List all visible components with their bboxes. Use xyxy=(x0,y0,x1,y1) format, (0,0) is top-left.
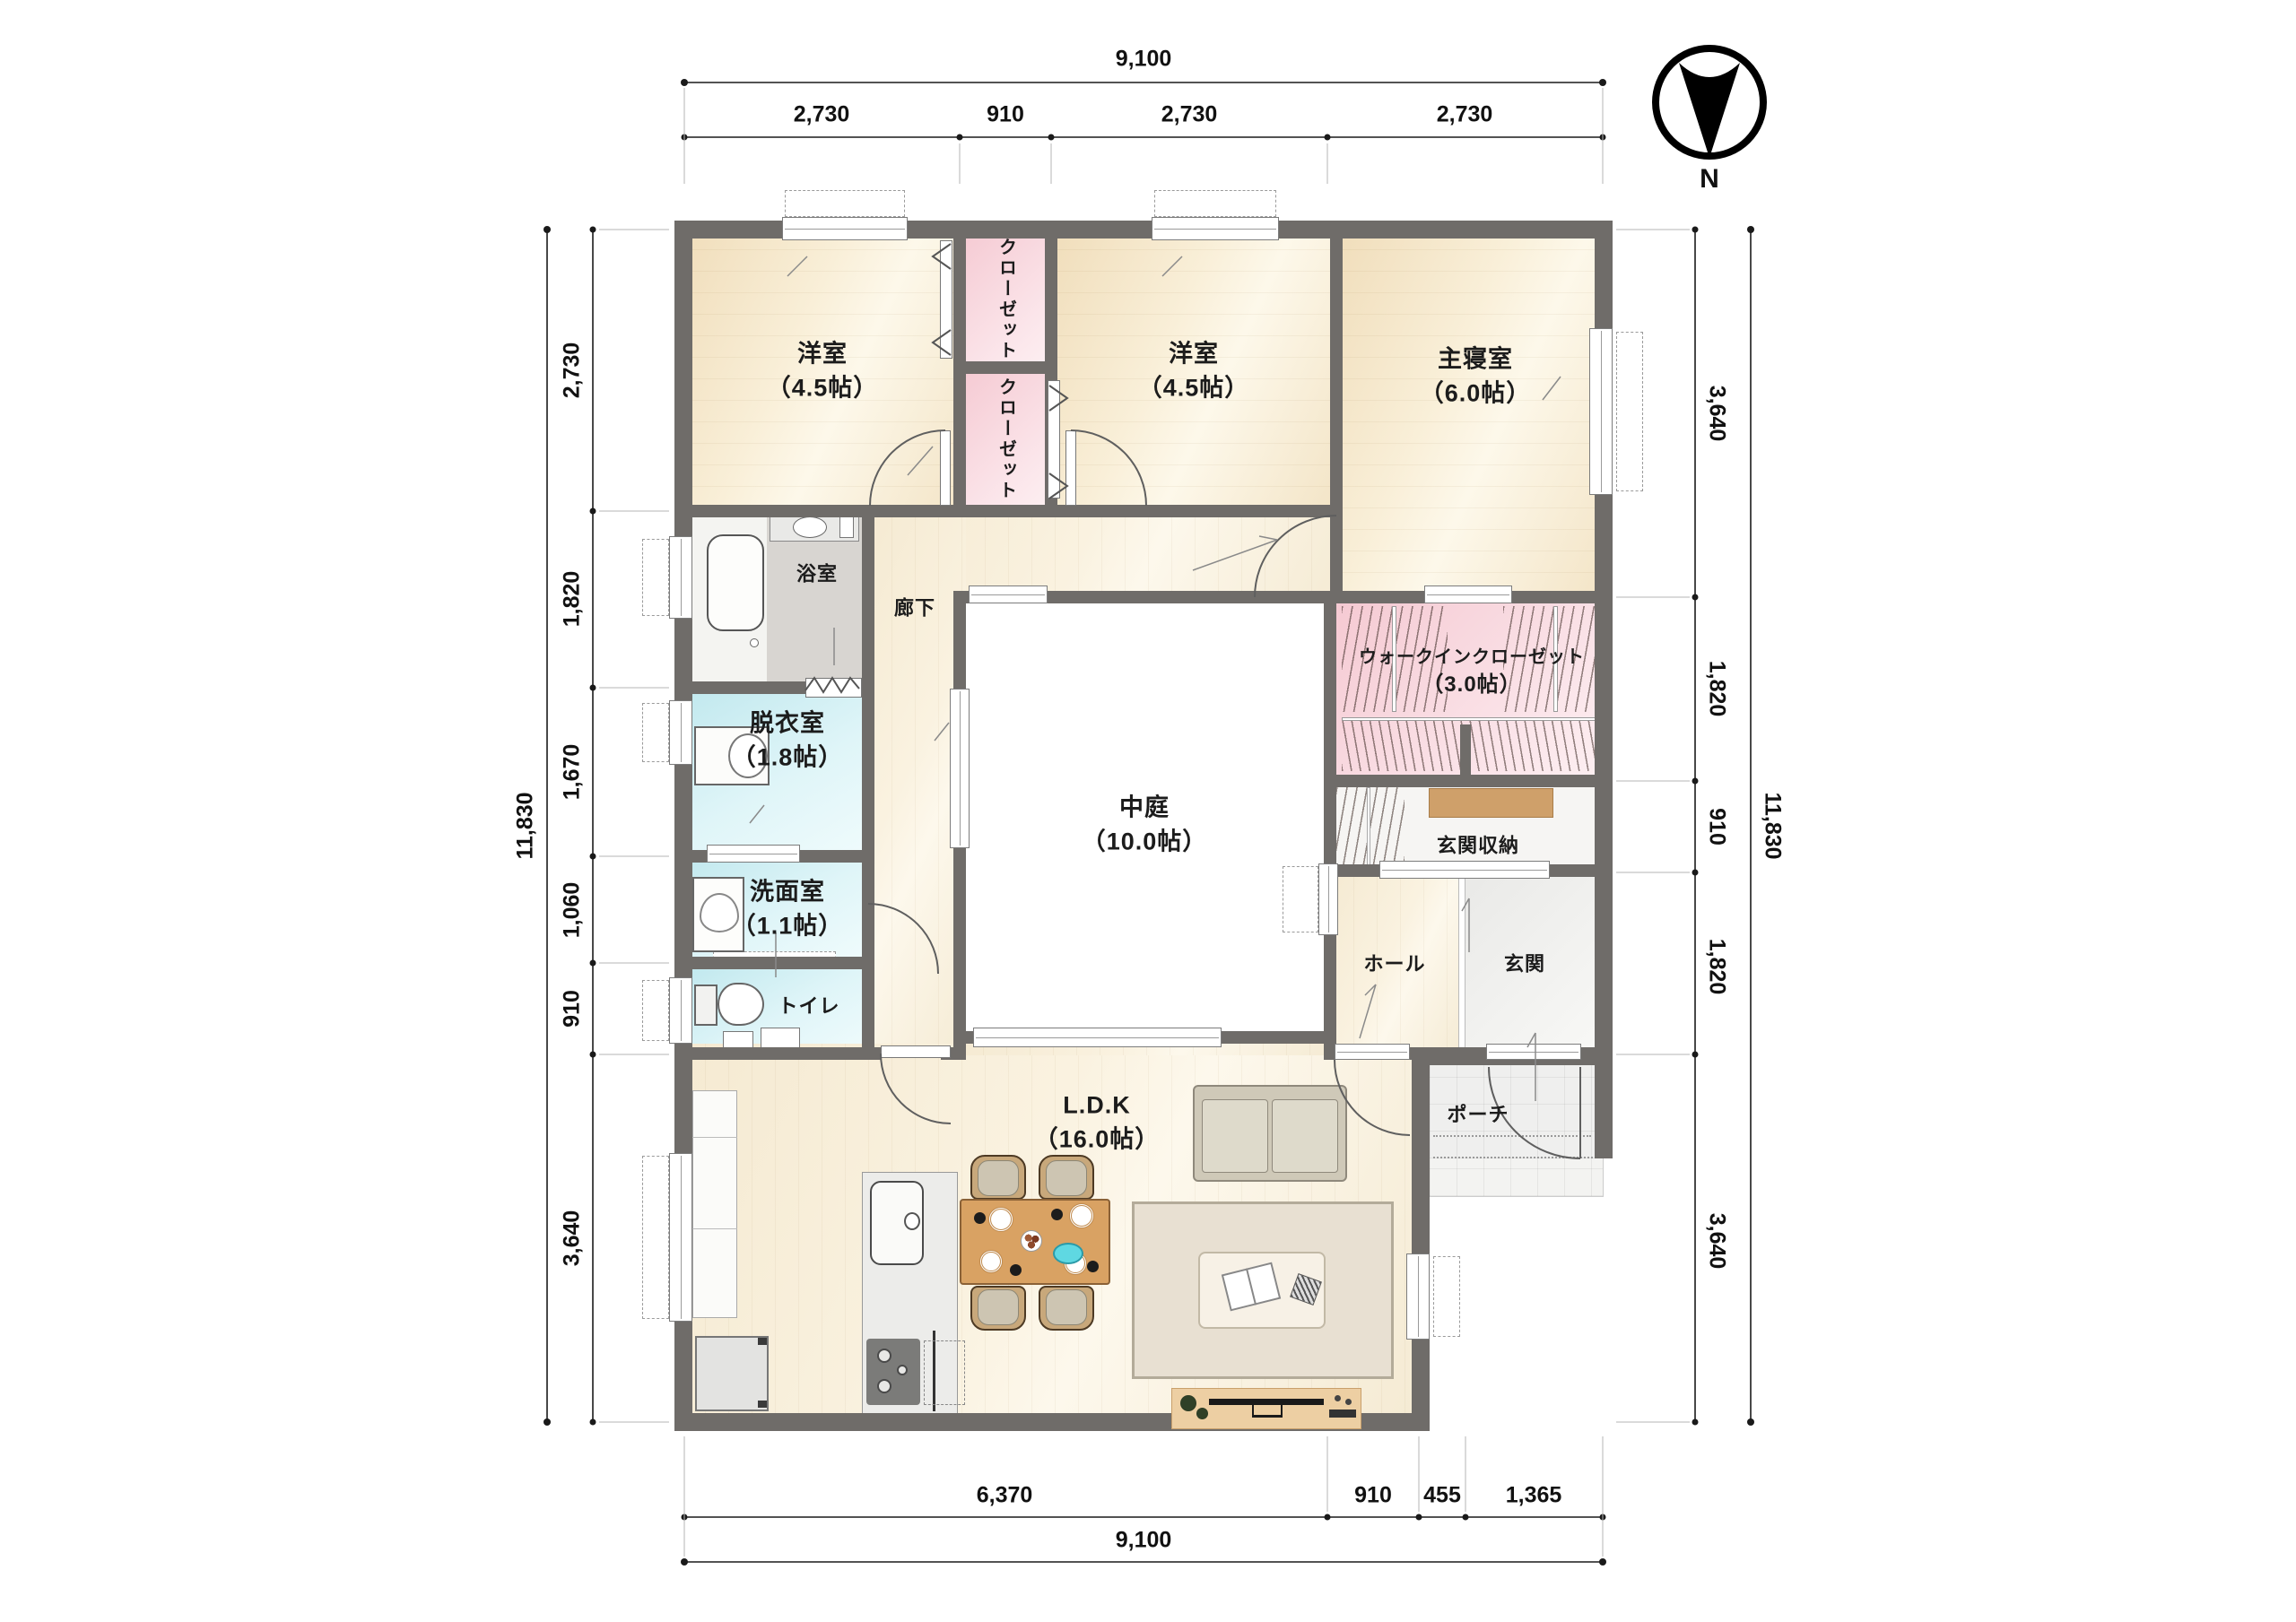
courtyard-window xyxy=(973,1028,1222,1047)
wall xyxy=(1595,1047,1613,1158)
room-label-yoshitsu1: 洋室 （4.5帖） xyxy=(767,337,879,406)
room-name: L.D.K xyxy=(1034,1089,1161,1123)
room-label-nakaniwa: 中庭 （10.0帖） xyxy=(1082,791,1208,860)
wall xyxy=(1324,591,1336,1060)
room-label-porch: ポーチ xyxy=(1447,1100,1509,1128)
front-door-sill xyxy=(1486,1044,1581,1060)
room-label-yokushitsu: 浴室 xyxy=(796,559,838,587)
dim-left-seg: 1,670 xyxy=(560,744,586,801)
courtyard-window xyxy=(950,689,970,848)
plate xyxy=(988,1207,1013,1232)
room-label-yoshitsu2: 洋室 （4.5帖） xyxy=(1138,337,1250,406)
chair-cushion xyxy=(978,1160,1019,1196)
plate xyxy=(1069,1203,1094,1228)
porch-dotted-line-2 xyxy=(1433,1157,1600,1158)
island-prep-area xyxy=(924,1340,965,1405)
room-size: （3.0帖） xyxy=(1359,670,1585,700)
small-dish xyxy=(1010,1264,1022,1276)
stove-burner xyxy=(877,1379,891,1393)
wic-sliding-door xyxy=(1424,585,1512,603)
window-shutter-box xyxy=(642,703,669,762)
dim-bottom-total: 9,100 xyxy=(1116,1528,1172,1554)
toilet-hand-basin xyxy=(761,1028,800,1049)
window xyxy=(782,217,908,240)
room-name: 洗面室 xyxy=(732,875,844,909)
window xyxy=(669,1153,692,1322)
cyan-dish xyxy=(1053,1243,1083,1264)
room-label-datsuishitsu: 脱衣室 （1.8帖） xyxy=(732,707,844,776)
window xyxy=(669,536,692,619)
room-label-shushinshitsu: 主寝室 （6.0帖） xyxy=(1420,343,1532,412)
courtyard-door xyxy=(1318,863,1338,935)
genkanshuno-sliding-door xyxy=(1379,861,1550,879)
room-name: 洋室 xyxy=(767,337,879,371)
plate xyxy=(979,1250,1003,1273)
dim-left-seg: 1,060 xyxy=(560,882,586,939)
dim-bottom-seg: 910 xyxy=(1354,1483,1392,1509)
chair-cushion xyxy=(1046,1289,1087,1325)
dim-left-seg: 910 xyxy=(560,990,586,1028)
hall-ldk-door-sill xyxy=(1335,1044,1410,1060)
room-name: 脱衣室 xyxy=(732,707,844,741)
kitchen-stove xyxy=(866,1339,920,1405)
room-name: 主寝室 xyxy=(1420,343,1532,377)
window-shutter-box xyxy=(1616,332,1643,491)
room-size: （16.0帖） xyxy=(1034,1123,1161,1157)
refrigerator-hinge xyxy=(758,1401,767,1408)
pantry-shelf-line xyxy=(692,1137,737,1138)
wic-hanger-rod-bottom xyxy=(1342,717,1607,721)
window-shutter-box xyxy=(642,980,669,1041)
door-leaf xyxy=(1065,430,1076,506)
room-label-ldk: L.D.K （16.0帖） xyxy=(1034,1089,1161,1158)
dim-bottom-seg: 1,365 xyxy=(1506,1483,1562,1509)
window xyxy=(669,700,692,765)
toilet-cabinet xyxy=(723,1031,753,1049)
wall xyxy=(953,361,1057,374)
dim-top-seg: 910 xyxy=(987,102,1024,128)
window xyxy=(669,977,692,1044)
north-compass-icon xyxy=(1656,48,1763,158)
room-label-closet1: クローゼット xyxy=(994,238,1020,361)
genkanshuno-shelf-divider xyxy=(1367,787,1370,870)
room-label-genkan: 玄関 xyxy=(1504,950,1545,977)
window-shutter-box xyxy=(785,190,905,217)
chair-cushion xyxy=(1046,1160,1087,1196)
dim-bottom-seg: 6,370 xyxy=(977,1483,1033,1509)
window xyxy=(1406,1253,1430,1340)
dim-right-total: 11,830 xyxy=(1760,792,1786,859)
porch-dotted-line-1 xyxy=(1433,1135,1591,1137)
toilet-tank xyxy=(694,984,717,1026)
dim-top-seg: 2,730 xyxy=(794,102,850,128)
wic-clothes-rack-bottom xyxy=(1342,717,1607,771)
sofa-cushion xyxy=(1202,1099,1268,1173)
door-leaf xyxy=(940,430,951,506)
window-shutter-box xyxy=(642,1156,669,1319)
room-size: （1.1帖） xyxy=(732,909,844,943)
bath-sink xyxy=(793,516,827,538)
room-label-toire: トイレ xyxy=(778,992,839,1019)
window-shutter-box xyxy=(642,539,669,616)
dim-right-seg: 1,820 xyxy=(1704,661,1730,717)
dim-left-seg: 3,640 xyxy=(560,1210,586,1267)
genkanshuno-open-shelf xyxy=(1336,787,1405,870)
stove-burner xyxy=(897,1365,908,1375)
room-name: 中庭 xyxy=(1082,791,1208,825)
centerpiece-flowers xyxy=(1021,1230,1042,1252)
bath-drain xyxy=(750,638,759,647)
wall xyxy=(674,1047,881,1060)
room-shushinshitsu-floor xyxy=(1336,228,1605,597)
room-label-hall: ホール xyxy=(1363,950,1425,977)
refrigerator-hinge xyxy=(758,1338,767,1345)
courtyard-door-step xyxy=(1283,866,1318,932)
dim-right-seg: 3,640 xyxy=(1704,386,1730,442)
wall xyxy=(674,505,1343,517)
small-dish xyxy=(1051,1209,1063,1220)
toilet-bowl xyxy=(717,983,764,1026)
window-shutter-box xyxy=(1433,1256,1460,1337)
room-name: ウォークインクローゼット xyxy=(1359,645,1585,670)
closet1-folding-door xyxy=(940,240,952,359)
wall xyxy=(1330,230,1343,603)
window xyxy=(1152,217,1279,240)
dim-left-seg: 2,730 xyxy=(560,343,586,399)
pantry-shelf-line xyxy=(692,1228,737,1229)
room-label-genkanshuno: 玄関収納 xyxy=(1437,831,1519,859)
small-dish xyxy=(1087,1261,1099,1272)
room-label-senmenshitsu: 洗面室 （1.1帖） xyxy=(732,875,844,944)
bathtub xyxy=(707,534,764,631)
dim-bottom-seg: 455 xyxy=(1423,1483,1461,1509)
room-label-wic: ウォークインクローゼット （3.0帖） xyxy=(1359,645,1585,700)
kitchen-faucet xyxy=(904,1212,920,1230)
wall xyxy=(1412,1047,1430,1431)
genkan-step-edge xyxy=(1458,877,1465,1054)
shoe-cabinet xyxy=(1429,788,1553,818)
room-size: （10.0帖） xyxy=(1082,825,1208,859)
dim-right-seg: 1,820 xyxy=(1704,939,1730,995)
dim-right-seg: 910 xyxy=(1704,808,1730,846)
room-label-rouka: 廊下 xyxy=(894,594,935,621)
small-dish xyxy=(974,1212,986,1224)
wall xyxy=(1460,724,1471,775)
bath-folding-door xyxy=(805,678,862,698)
av-speaker xyxy=(1345,1399,1352,1405)
chair-cushion xyxy=(978,1289,1019,1325)
tv xyxy=(1209,1399,1324,1405)
room-name: 洋室 xyxy=(1138,337,1250,371)
room-size: （4.5帖） xyxy=(1138,371,1250,405)
dim-left-total: 11,830 xyxy=(513,792,539,859)
room-size: （1.8帖） xyxy=(732,741,844,775)
av-remote xyxy=(1329,1409,1356,1418)
window-shutter-box xyxy=(1154,190,1276,217)
plant xyxy=(1180,1395,1196,1411)
pantry-shelf xyxy=(692,1090,737,1318)
datsuishitsu-sliding-door xyxy=(707,845,800,863)
porch-step xyxy=(1430,1158,1604,1197)
wall xyxy=(674,957,874,969)
av-speaker xyxy=(1335,1395,1341,1401)
dim-right-seg: 3,640 xyxy=(1704,1213,1730,1270)
room-size: （4.5帖） xyxy=(767,371,879,405)
closet2-folding-door xyxy=(1048,380,1060,499)
tv-stand xyxy=(1252,1405,1283,1418)
sliding-door xyxy=(969,585,1048,603)
room-size: （6.0帖） xyxy=(1420,377,1532,411)
north-label: N xyxy=(1700,164,1719,195)
floor-plan-canvas: 洋室 （4.5帖） クローゼット クローゼット 洋室 （4.5帖） 主寝室 （6… xyxy=(0,0,2296,1622)
corridor-ldk-door-leaf xyxy=(881,1045,951,1058)
dim-top-seg: 2,730 xyxy=(1161,102,1218,128)
wall xyxy=(1330,775,1613,787)
dim-top-total: 9,100 xyxy=(1116,47,1172,73)
plant xyxy=(1196,1408,1208,1419)
dim-left-seg: 1,820 xyxy=(560,571,586,628)
sofa-cushion xyxy=(1272,1099,1338,1173)
dim-top-seg: 2,730 xyxy=(1437,102,1493,128)
wall xyxy=(862,505,874,1060)
room-label-closet2: クローゼット xyxy=(994,377,1020,501)
bath-mirror xyxy=(839,516,854,538)
window xyxy=(1589,328,1613,495)
stove-burner xyxy=(877,1349,891,1363)
